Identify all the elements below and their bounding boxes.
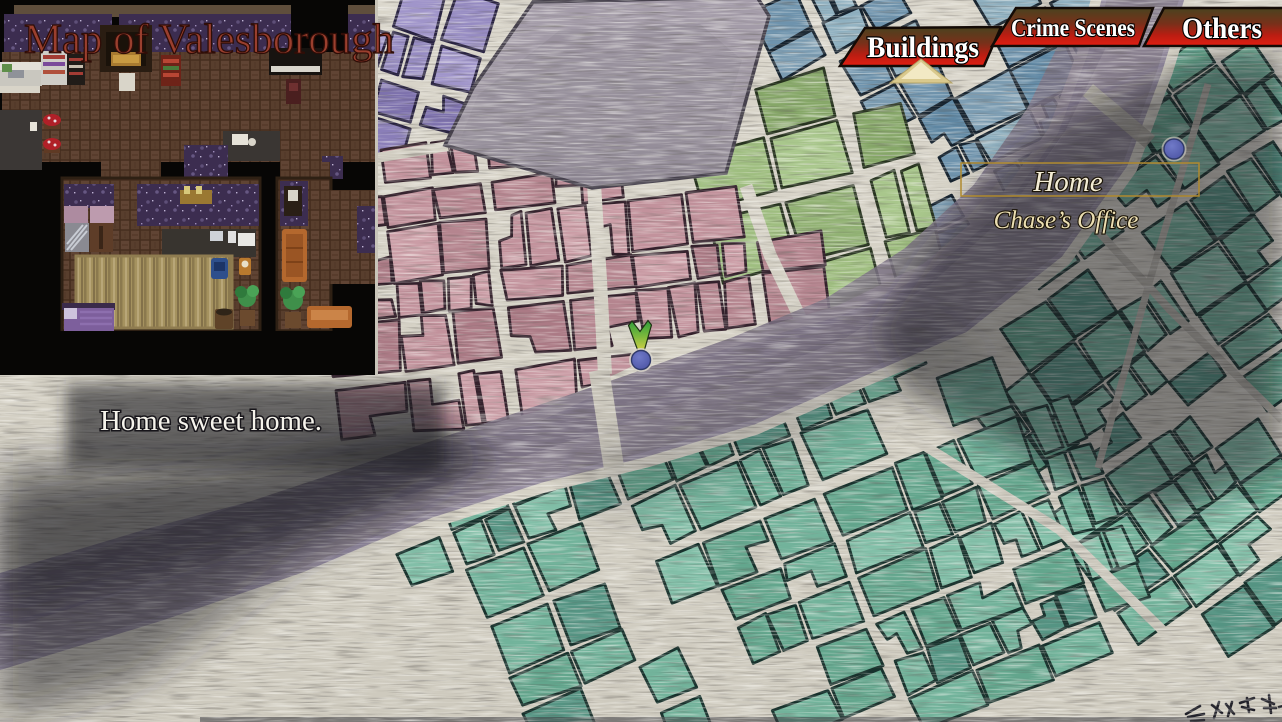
svg-text:Chase’s Office: Chase’s Office (994, 207, 1139, 234)
svg-text:Others: Others (1182, 12, 1262, 45)
svg-text:Home sweet home.: Home sweet home. (100, 405, 322, 437)
svg-text:Buildings: Buildings (867, 31, 979, 64)
svg-text:Map of Valesborough: Map of Valesborough (24, 17, 394, 63)
svg-text:Home: Home (1032, 166, 1102, 198)
svg-text:Crime Scenes: Crime Scenes (1011, 15, 1135, 42)
